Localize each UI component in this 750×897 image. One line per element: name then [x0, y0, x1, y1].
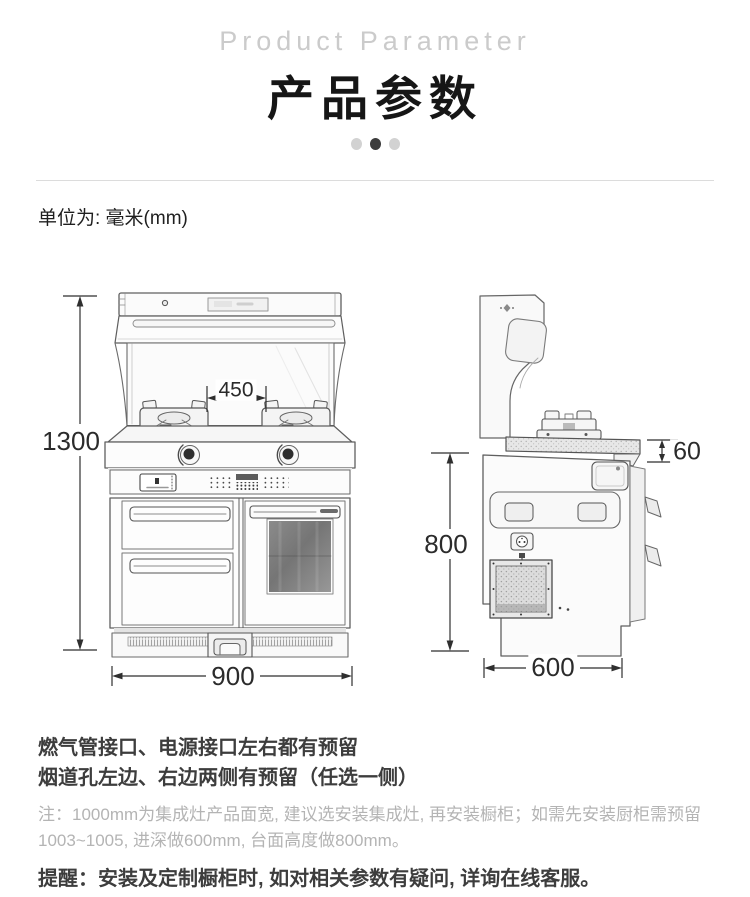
unit-note: 单位为: 毫米(mm) [38, 203, 188, 230]
stove-technical-drawing [0, 270, 750, 700]
carousel-dot[interactable] [351, 138, 362, 150]
note-cabinet-detail: 注：1000mm为集成灶产品面宽, 建议选安装集成灶, 再安装橱柜；如需先安装厨… [38, 802, 714, 854]
counter-thickness-label: 60 [670, 440, 704, 465]
carousel-dots [0, 138, 750, 150]
carousel-dot[interactable] [370, 138, 381, 150]
front-view-drawing [105, 293, 355, 657]
dim-front-height [63, 296, 97, 650]
carousel-dot[interactable] [389, 138, 400, 150]
front-height-label: 1300 [39, 428, 103, 454]
vent-grille-right [252, 637, 332, 646]
wall-hook-lower [645, 545, 661, 566]
chimney-duct [480, 295, 547, 438]
body-height-label: 800 [421, 531, 470, 557]
range-hood [115, 293, 345, 343]
side-body [483, 455, 661, 656]
product-parameter-page: Product Parameter 产品参数 单位为: 毫米(mm) [0, 0, 750, 897]
vent-grille-left [128, 637, 208, 646]
page-subtitle: Product Parameter [0, 26, 750, 57]
installation-notes: 燃气管接口、电源接口左右都有预留 烟道孔左边、右边两侧有预留（任选一侧） 注：1… [38, 733, 714, 893]
divider-line [36, 180, 714, 181]
access-panel [490, 560, 552, 618]
note-flue: 烟道孔左边、右边两侧有预留（任选一侧） [38, 763, 714, 793]
note-gas-power: 燃气管接口、电源接口左右都有预留 [38, 733, 714, 763]
side-view-drawing [480, 295, 661, 656]
hood-light [162, 300, 167, 305]
oven-door [245, 501, 345, 625]
burner-side-profile [537, 411, 601, 439]
cabinet-body [110, 498, 350, 628]
burner-spacing-label: 450 [215, 380, 256, 401]
depth-label: 600 [528, 654, 577, 680]
plug-icon [519, 553, 525, 558]
note-reminder: 提醒：安装及定制橱柜时, 如对相关参数有疑问, 详询在线客服。 [38, 865, 714, 893]
countertop [105, 426, 355, 470]
dimension-diagram: 1300 450 900 800 600 60 [0, 270, 750, 700]
front-width-label: 900 [208, 663, 257, 689]
page-title: 产品参数 [0, 60, 750, 129]
oven-brand-mark [320, 509, 338, 513]
wall-hook-upper [645, 497, 661, 517]
base-plinth [112, 628, 348, 657]
control-panel [110, 470, 350, 494]
